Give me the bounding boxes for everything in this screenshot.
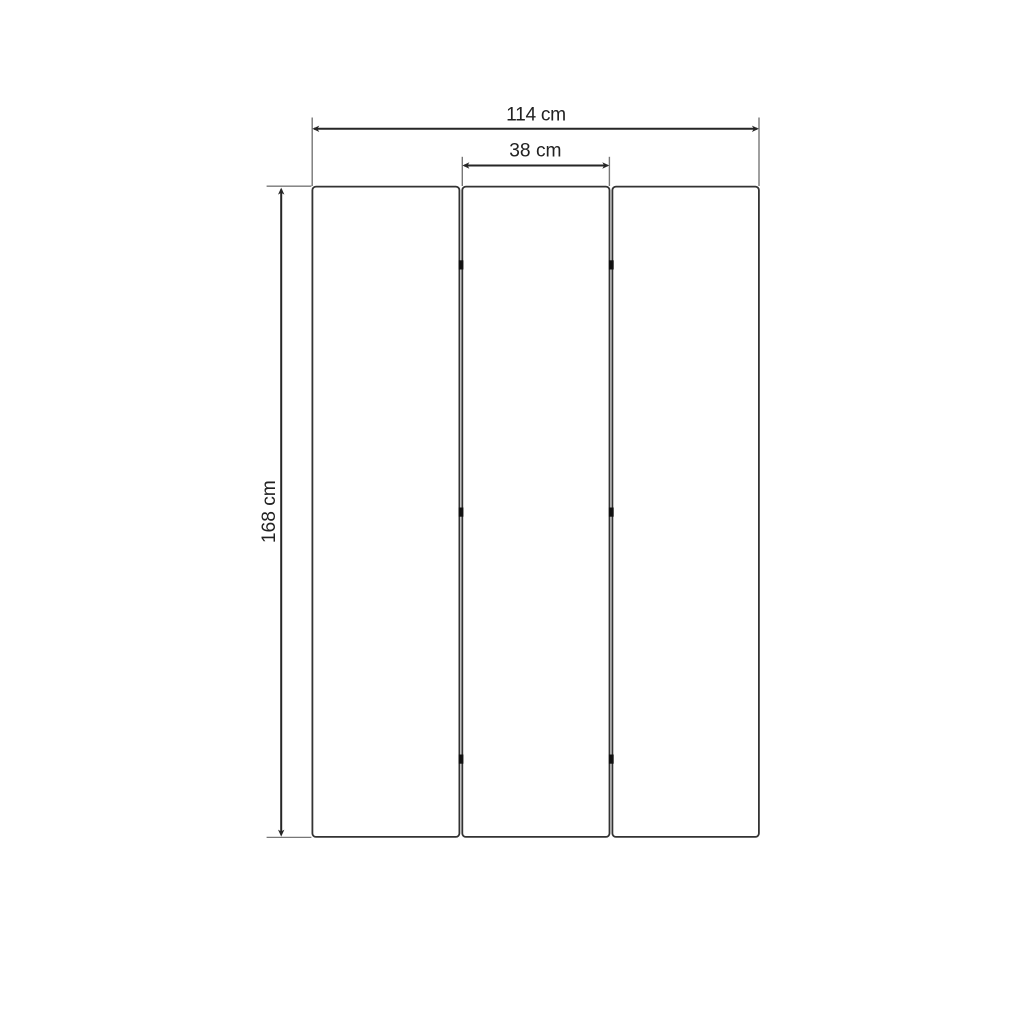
svg-text:38 cm: 38 cm xyxy=(509,140,561,161)
svg-text:114 cm: 114 cm xyxy=(506,105,566,126)
svg-text:168 cm: 168 cm xyxy=(259,480,280,543)
